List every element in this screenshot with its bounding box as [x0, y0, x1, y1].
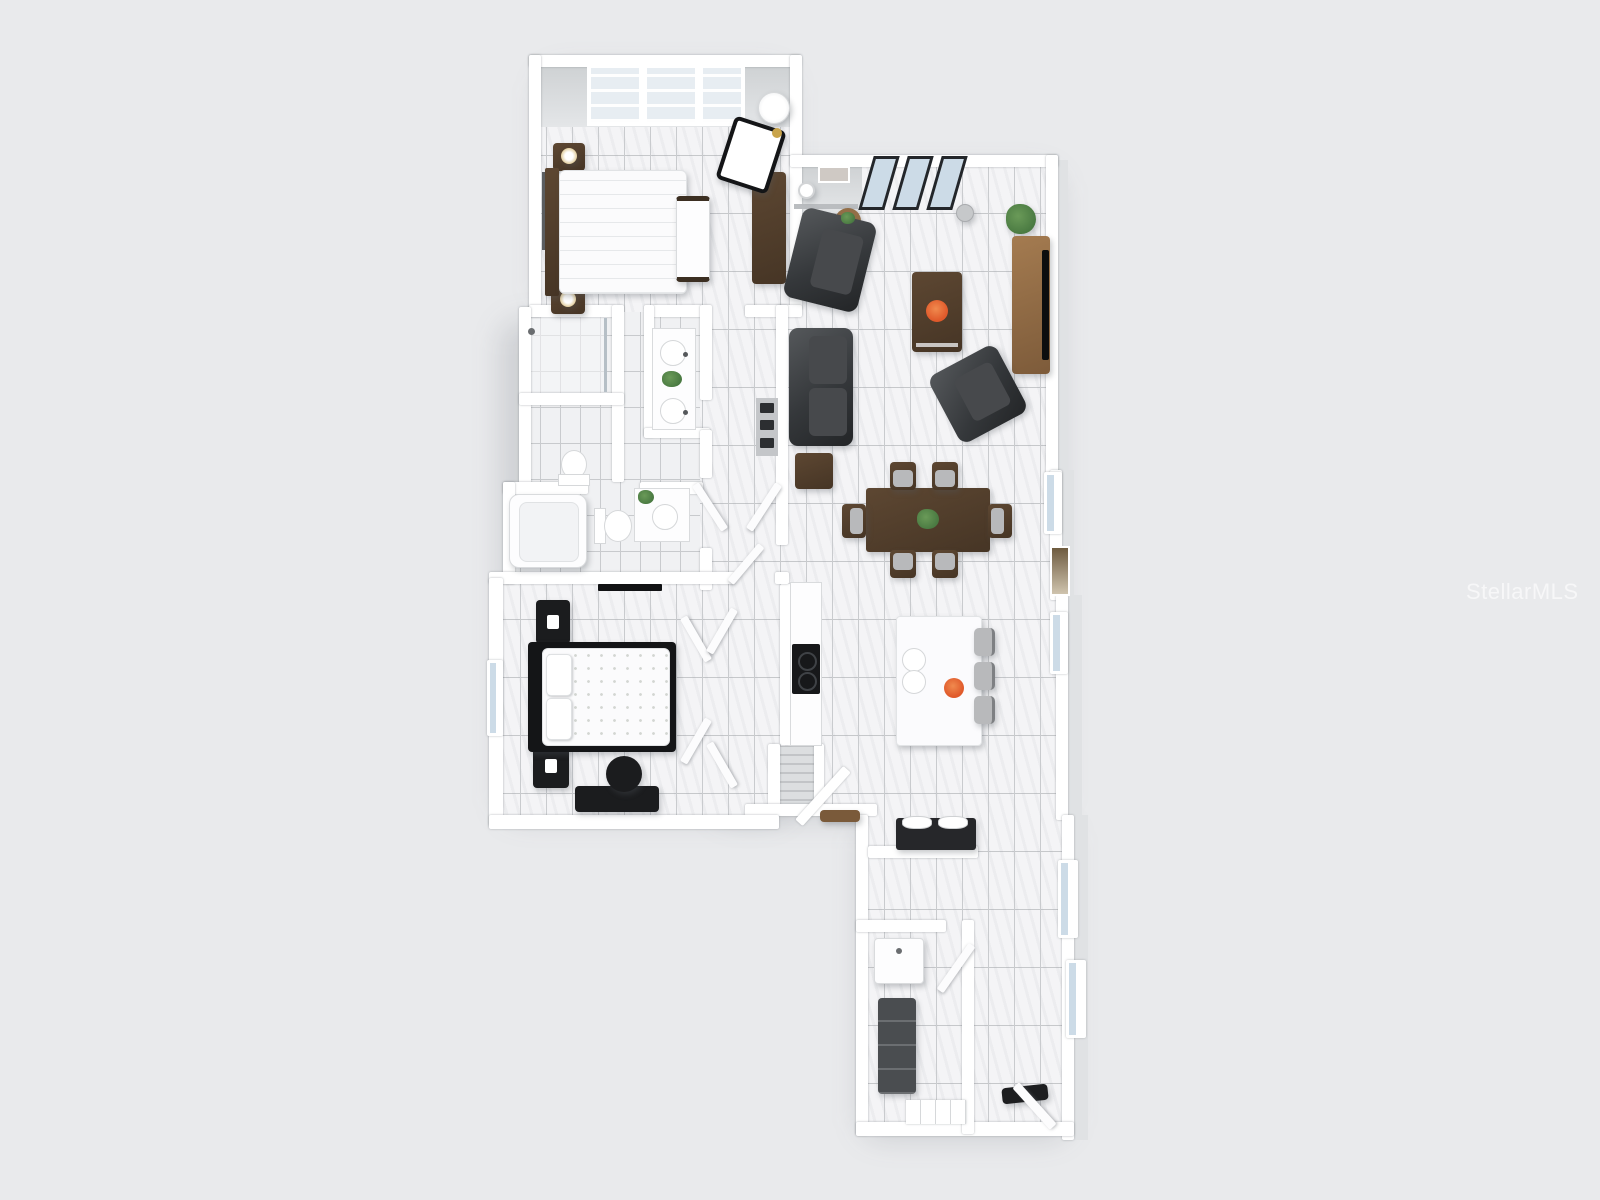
- bedroom-bottom-wall: [745, 305, 802, 317]
- faucet: [896, 948, 902, 954]
- dining-chair: [842, 504, 866, 538]
- laundry-top-wall: [856, 920, 946, 932]
- shower-bottom-wall: [519, 393, 624, 405]
- bedroom2-top-wall: [775, 572, 789, 584]
- hall-divider-wall: [700, 305, 712, 400]
- wall-mounted-tv: [598, 584, 662, 591]
- laundry-sink-vanity: [874, 938, 924, 984]
- floor-plan-render: StellarMLS: [0, 0, 1600, 1200]
- laundry-shelving: [878, 998, 916, 1094]
- entry-bench-wood: [820, 810, 860, 822]
- gold-decor: [772, 128, 782, 138]
- island-sink-bowl: [902, 648, 926, 672]
- island-sink-bowl: [902, 670, 926, 694]
- shower-glass: [604, 318, 607, 392]
- toilet: [604, 510, 632, 542]
- floor-lamp: [758, 92, 790, 124]
- window: [487, 660, 503, 736]
- leaning-mirror: [542, 172, 545, 250]
- screenshot-root: { "image": { "kind": "3d-rendered-floor-…: [0, 0, 1600, 1200]
- laundry-door-bottom: [906, 1100, 966, 1124]
- wall-art-frame: [1050, 546, 1070, 596]
- bedroom-skylight-window: [587, 64, 745, 126]
- master-bed: [559, 170, 687, 294]
- hall-shelf-unit: [756, 398, 778, 456]
- sofa: [789, 328, 853, 446]
- window: [1044, 472, 1062, 534]
- table-lamp-gold: [561, 148, 577, 164]
- shower-floor-highlight: [527, 316, 607, 394]
- sink-basin: [902, 816, 932, 829]
- window: [1058, 860, 1078, 938]
- television: [1042, 250, 1049, 360]
- bar-stool: [974, 662, 995, 690]
- dining-chair: [890, 462, 916, 490]
- bedroom2-bottom-wall: [489, 815, 779, 829]
- vanity-plant: [638, 490, 654, 504]
- desk-chair: [606, 756, 642, 792]
- fruit-plate-orange: [944, 678, 964, 698]
- right-wall-outer-face: [1068, 595, 1082, 820]
- bar-stool: [974, 696, 995, 724]
- nightstand-black: [536, 600, 570, 644]
- dining-chair: [988, 504, 1012, 538]
- vanity-sink: [652, 504, 678, 530]
- dining-chair: [932, 550, 958, 578]
- tail-left-wall: [856, 815, 868, 1135]
- faucet: [683, 352, 688, 357]
- dining-chair: [932, 462, 958, 490]
- toilet-tank: [558, 474, 590, 486]
- console-lamp: [798, 182, 815, 199]
- bedroom-bottom-wall: [652, 305, 702, 317]
- sliding-glass-door: [862, 154, 968, 216]
- faucet: [683, 410, 688, 415]
- corner-plant: [1006, 204, 1036, 234]
- wall-picture-frame: [818, 166, 850, 183]
- bedroom-bench: [676, 196, 710, 282]
- shower-head: [528, 328, 535, 335]
- window: [1050, 612, 1068, 674]
- right-wall-outer-face: [1058, 160, 1068, 475]
- pillow: [546, 654, 572, 696]
- stellar-mls-watermark: StellarMLS: [1466, 579, 1579, 605]
- plant-small: [841, 212, 855, 224]
- dining-chair: [890, 550, 916, 578]
- sink-basin: [938, 816, 968, 829]
- bathtub: [509, 494, 587, 568]
- bedroom2-top-wall: [489, 572, 735, 584]
- table-centerpiece-plant: [917, 509, 939, 529]
- vanity-plant: [662, 371, 682, 387]
- cooktop: [792, 644, 820, 694]
- hall-divider-wall: [700, 430, 712, 478]
- bed-headboard: [545, 168, 559, 296]
- pillow: [546, 698, 572, 740]
- bedroom-left-wall: [529, 55, 541, 317]
- decor-plate-orange: [926, 300, 948, 322]
- window: [1066, 960, 1086, 1038]
- bar-stool: [974, 628, 995, 656]
- end-table: [795, 453, 833, 489]
